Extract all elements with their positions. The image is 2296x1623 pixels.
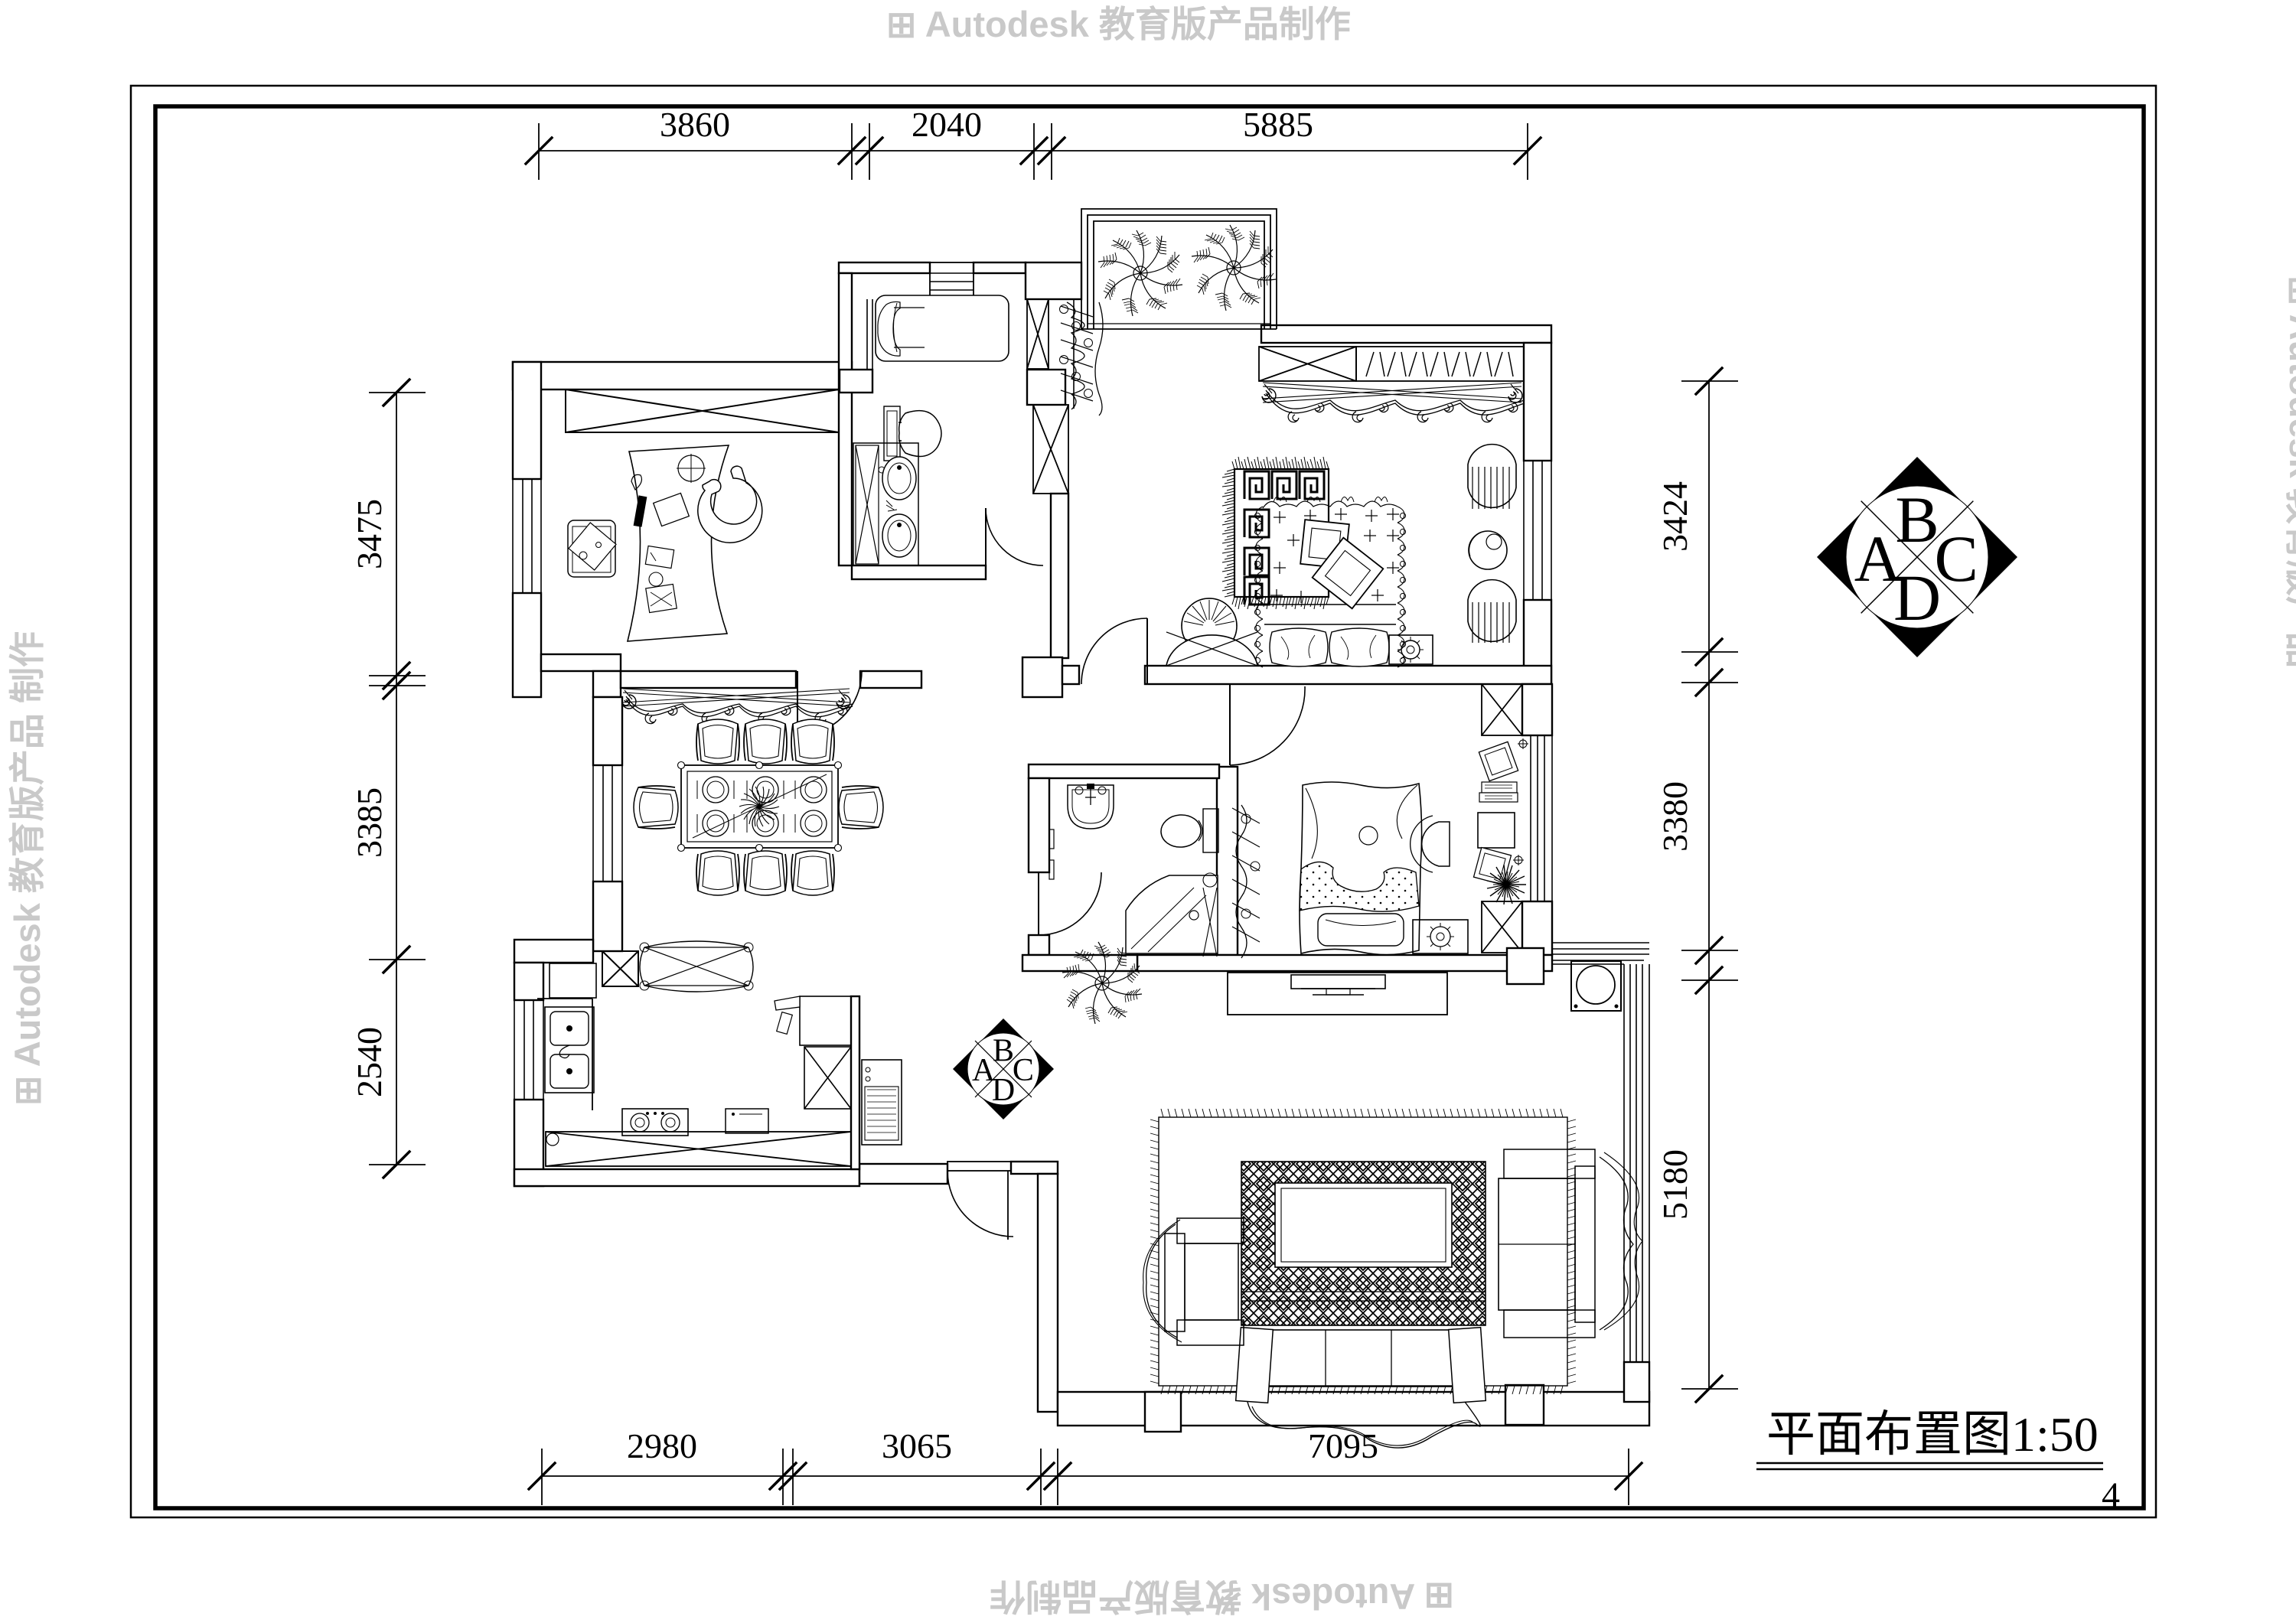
svg-text:3860: 3860 [660,105,730,144]
svg-text:D: D [1893,561,1941,634]
svg-text:3424: 3424 [1655,481,1694,552]
svg-text:3385: 3385 [350,787,389,858]
svg-text:5885: 5885 [1243,105,1313,144]
svg-text:⊞ Autodesk 教育版产品 制作: ⊞ Autodesk 教育版产品 制作 [7,631,47,1106]
svg-text:7095: 7095 [1308,1426,1378,1465]
svg-text:5180: 5180 [1655,1149,1694,1220]
svg-text:⊞ Autodesk 教育版产品: ⊞ Autodesk 教育版产品 [2282,275,2296,668]
svg-text:3065: 3065 [882,1426,952,1465]
svg-text:C: C [1013,1053,1034,1088]
svg-text:⊞ Autodesk 教育版产品制作: ⊞ Autodesk 教育版产品制作 [990,1576,1454,1617]
svg-text:平面布置图1:50: 平面布置图1:50 [1766,1407,2099,1462]
svg-text:B: B [993,1033,1014,1068]
svg-text:D: D [992,1073,1015,1108]
svg-text:2040: 2040 [912,105,982,144]
svg-text:4: 4 [2102,1475,2120,1516]
svg-text:3475: 3475 [350,499,389,569]
svg-text:2540: 2540 [350,1027,389,1097]
svg-text:C: C [1934,522,1978,595]
svg-text:3380: 3380 [1655,781,1694,852]
svg-text:2980: 2980 [627,1426,697,1465]
svg-text:⊞ Autodesk 教育版产品制作: ⊞ Autodesk 教育版产品制作 [886,4,1351,44]
svg-text:B: B [1895,483,1939,556]
